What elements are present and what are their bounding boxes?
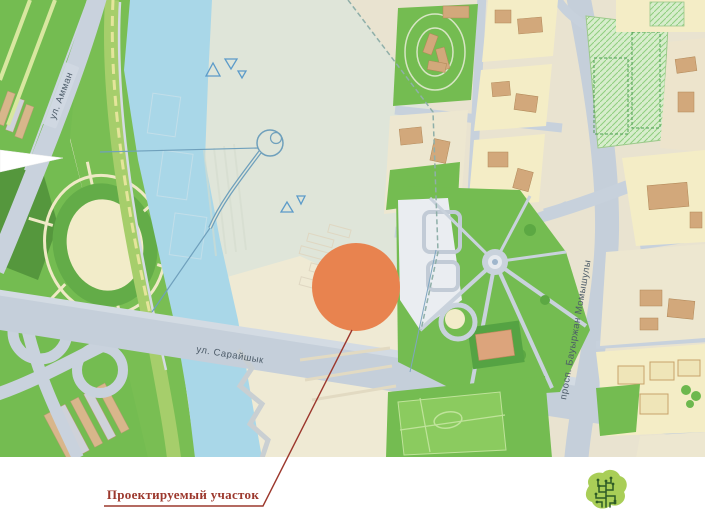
map-canvas: ул. Амман ул. Сарайшык просп. Бауыржан М…	[0, 0, 705, 523]
project-annotation-label: Проектируемый участок	[107, 487, 259, 502]
site-plan-slide: ул. Амман ул. Сарайшык просп. Бауыржан М…	[0, 0, 705, 523]
site-marker-circle	[312, 243, 400, 331]
